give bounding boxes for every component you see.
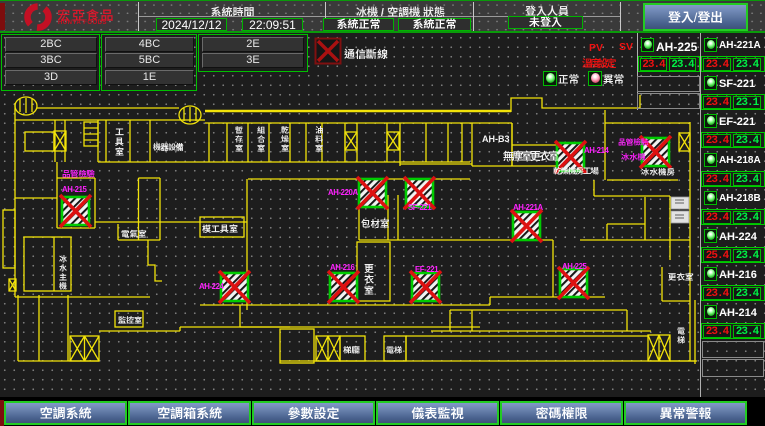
svg-text:電梯: 電梯 <box>386 345 402 356</box>
svg-text:AH-215: AH-215 <box>62 184 88 195</box>
svg-text:包材室: 包材室 <box>361 216 390 230</box>
svg-text:AH-B3: AH-B3 <box>482 134 510 144</box>
svg-text:監控室: 監控室 <box>118 315 142 326</box>
svg-text:模工具室: 模工具室 <box>201 222 238 235</box>
svg-text:AH-214: AH-214 <box>584 145 610 156</box>
svg-text:AH-220A: AH-220A <box>328 187 358 198</box>
svg-text:更衣室: 更衣室 <box>668 271 694 283</box>
svg-text:油料室: 油料室 <box>315 125 323 154</box>
svg-text:電梯: 電梯 <box>676 326 685 346</box>
svg-text:工具室: 工具室 <box>115 125 124 158</box>
svg-text:電氣室: 電氣室 <box>121 228 147 240</box>
svg-text:AH-225: AH-225 <box>562 261 588 272</box>
svg-text:冰水機: 冰水機 <box>620 151 646 163</box>
svg-text:品管檢驗: 品管檢驗 <box>618 137 650 148</box>
svg-text:乾燥機房工場: 乾燥機房工場 <box>553 165 600 177</box>
svg-text:SF-221: SF-221 <box>408 202 432 213</box>
svg-text:EF-221: EF-221 <box>415 264 439 275</box>
svg-text:乾燥室: 乾燥室 <box>281 125 289 154</box>
svg-text:暫存室: 暫存室 <box>235 125 243 154</box>
svg-text:品管檢驗: 品管檢驗 <box>62 168 95 180</box>
svg-text:更衣室: 更衣室 <box>364 260 375 297</box>
svg-text:梯廳: 梯廳 <box>342 344 361 356</box>
svg-text:無塵室更衣室: 無塵室更衣室 <box>503 148 559 164</box>
svg-text:AH-221A: AH-221A <box>513 202 543 213</box>
svg-text:AH-216: AH-216 <box>330 262 356 273</box>
svg-text:AH-224: AH-224 <box>199 281 225 292</box>
svg-text:組合室: 組合室 <box>256 125 266 154</box>
svg-text:冰水主機: 冰水主機 <box>59 254 68 292</box>
svg-text:機器設備: 機器設備 <box>153 142 183 153</box>
svg-text:冰水機房: 冰水機房 <box>640 166 676 178</box>
